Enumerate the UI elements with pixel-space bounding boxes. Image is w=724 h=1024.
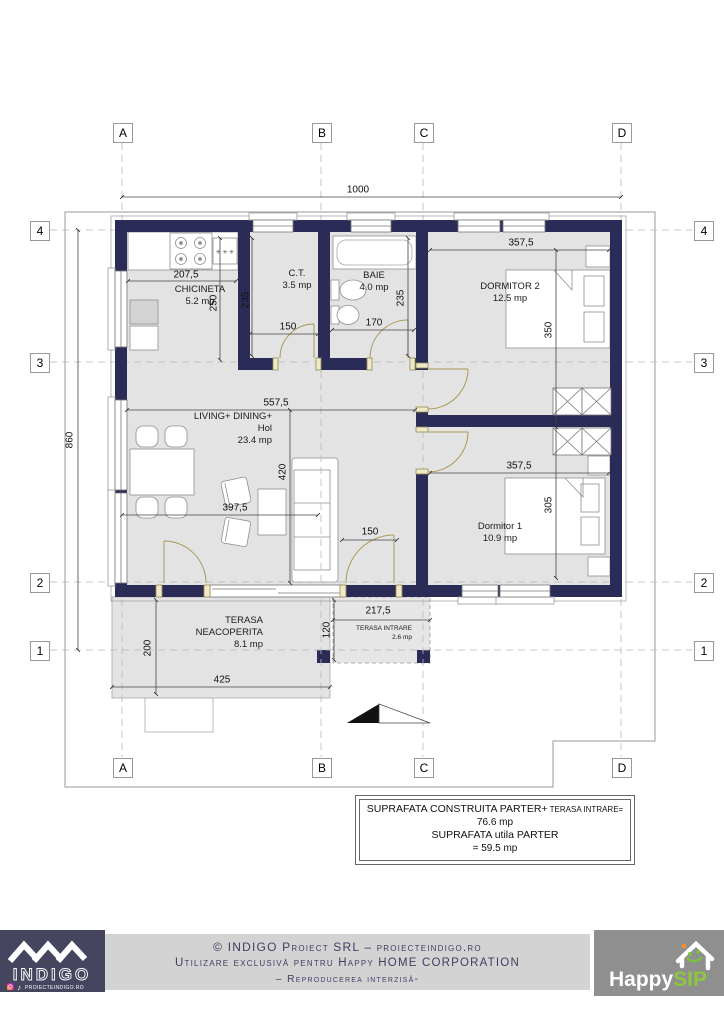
room-label-dormitor2: DORMITOR 2 12.5 mp	[450, 281, 570, 305]
room-area: 3.5 mp	[257, 280, 337, 292]
grid-row-2-right: 2	[694, 573, 714, 593]
room-label-ct: C.T. 3.5 mp	[257, 268, 337, 292]
dim-living-height: 420	[278, 464, 289, 481]
coffee-table-icon	[258, 489, 286, 535]
grid-col-b-top: B	[312, 123, 332, 143]
room-area: 10.9 mp	[440, 533, 560, 545]
suprafata-construita-value: 76.6 mp	[360, 816, 630, 829]
dim-baie-width: 170	[366, 318, 383, 329]
happysip-word1: Happy	[609, 968, 674, 991]
grid-row-4-left: 4	[30, 221, 50, 241]
nightstand	[586, 246, 610, 267]
floor-plan-drawing: ✳ ✳ ✳	[0, 0, 724, 800]
burner-symbols: ✳ ✳ ✳	[216, 249, 234, 256]
happysip-logo: HappySIP	[594, 930, 724, 996]
north-arrow-icon	[347, 704, 430, 723]
room-area: 8.1 mp	[143, 639, 263, 651]
dim-dormitor1-height: 305	[544, 497, 555, 514]
indigo-wordmark: INDIGO	[13, 965, 91, 984]
grid-row-1-right: 1	[694, 641, 714, 661]
room-name: Dormitor 1	[440, 521, 560, 533]
room-name: CHICINETA	[140, 284, 260, 296]
grid-col-d-top: D	[612, 123, 632, 143]
terasa-intrare-label: TERASA INTRARE=	[548, 805, 624, 814]
room-label-baie: BAIE 4.0 mp	[334, 270, 414, 294]
toilet-icon	[331, 306, 359, 325]
grid-col-d-bottom: D	[612, 758, 632, 778]
suprafata-utila-value: = 59.5 mp	[360, 842, 630, 855]
room-name: DORMITOR 2	[450, 281, 570, 293]
room-name: C.T.	[257, 268, 337, 280]
grid-col-c-top: C	[414, 123, 434, 143]
room-label-chicineta: CHICINETA 5.2 mp	[140, 284, 260, 308]
porch-post	[317, 650, 330, 663]
grid-col-c-bottom: C	[414, 758, 434, 778]
dim-overall-height: 860	[65, 432, 76, 449]
instagram-icon	[7, 983, 14, 990]
room-label-terasa: TERASA NEACOPERITA 8.1 mp	[143, 615, 263, 651]
bathtub-icon	[333, 236, 416, 269]
room-label-dormitor1: Dormitor 1 10.9 mp	[440, 521, 560, 545]
indigo-website: PROIECTEINDIGO.RO	[25, 985, 84, 991]
suprafata-construita-label: SUPRAFATA CONSTRUITA PARTER+	[367, 803, 548, 815]
dim-dormitor2-width: 357,5	[508, 238, 533, 249]
sofa-icon	[292, 458, 338, 582]
mountains-icon	[10, 945, 85, 961]
nightstand	[588, 557, 610, 576]
dim-living-width: 557,5	[263, 398, 288, 409]
area-summary-box: SUPRAFATA CONSTRUITA PARTER+ TERASA INTR…	[355, 795, 635, 865]
exterior-step	[145, 698, 213, 732]
copyright-line: © INDIGO Proiect SRL – proiecteindigo.ro	[105, 939, 590, 955]
reproduction-line: – Reproducerea interzisă-	[105, 971, 590, 987]
nightstand	[588, 456, 610, 475]
grid-row-3-right: 3	[694, 353, 714, 373]
stove-icon	[170, 233, 212, 269]
dim-kitchen-width: 207,5	[173, 270, 198, 281]
room-name: TERASA	[143, 615, 263, 627]
tiktok-icon: ♪	[17, 983, 21, 992]
grid-row-4-right: 4	[694, 221, 714, 241]
area-summary-inner: SUPRAFATA CONSTRUITA PARTER+ TERASA INTR…	[359, 799, 631, 861]
floor-plan-sheet: ✳ ✳ ✳ A B C D A B C D 4 3 2 1 4 3 2 1 10…	[0, 0, 724, 1024]
grid-row-3-left: 3	[30, 353, 50, 373]
room-name: TERASA INTRARE	[312, 624, 412, 633]
copyright-band: © INDIGO Proiect SRL – proiecteindigo.ro…	[105, 934, 590, 990]
happysip-word2: SIP	[673, 968, 707, 991]
room-area: 12.5 mp	[450, 293, 570, 305]
room-area: 23.4 mp	[152, 435, 272, 447]
dim-ct-width: 150	[280, 322, 297, 333]
grid-row-2-left: 2	[30, 573, 50, 593]
grid-col-a-top: A	[113, 123, 133, 143]
room-area: 4.0 mp	[334, 282, 414, 294]
dim-dormitor2-height: 350	[544, 322, 555, 339]
happysip-logo-art: HappySIP	[594, 930, 724, 996]
indigo-logo-art: INDIGO ♪ PROIECTEINDIGO.RO	[0, 930, 105, 992]
svg-text:HappySIP: HappySIP	[609, 968, 707, 991]
dim-entry-door: 150	[362, 527, 379, 538]
grid-col-b-bottom: B	[312, 758, 332, 778]
suprafata-utila-label: SUPRAFATA utila PARTER	[360, 829, 630, 842]
room-name: BAIE	[334, 270, 414, 282]
room-area: 5.2 mp	[140, 296, 260, 308]
dim-overall-width: 1000	[347, 185, 369, 196]
room-area: 2.6 mp	[312, 633, 412, 642]
armchair-icon	[221, 517, 251, 547]
grid-row-1-left: 1	[30, 641, 50, 661]
dim-terasa-width: 425	[214, 675, 231, 686]
grid-col-a-bottom: A	[113, 758, 133, 778]
room-label-terasa-intrare: TERASA INTRARE 2.6 mp	[312, 624, 412, 642]
sliding-glass-door	[210, 585, 342, 597]
porch-post	[417, 650, 430, 663]
indigo-logo: INDIGO ♪ PROIECTEINDIGO.RO	[0, 930, 105, 992]
room-name: LIVING+ DINING+	[152, 411, 272, 423]
room-name: NEACOPERITA	[143, 627, 263, 639]
dim-dormitor1-width: 357,5	[506, 461, 531, 472]
dim-terasa-intrare-width: 217,5	[365, 606, 390, 617]
dim-living-width2: 397,5	[222, 503, 247, 514]
exterior-wall-right	[610, 220, 622, 597]
room-label-living: LIVING+ DINING+ Hol 23.4 mp	[152, 411, 272, 447]
room-name: Hol	[152, 423, 272, 435]
usage-line: Utilizare exclusivă pentru Happy HOME CO…	[105, 955, 590, 971]
